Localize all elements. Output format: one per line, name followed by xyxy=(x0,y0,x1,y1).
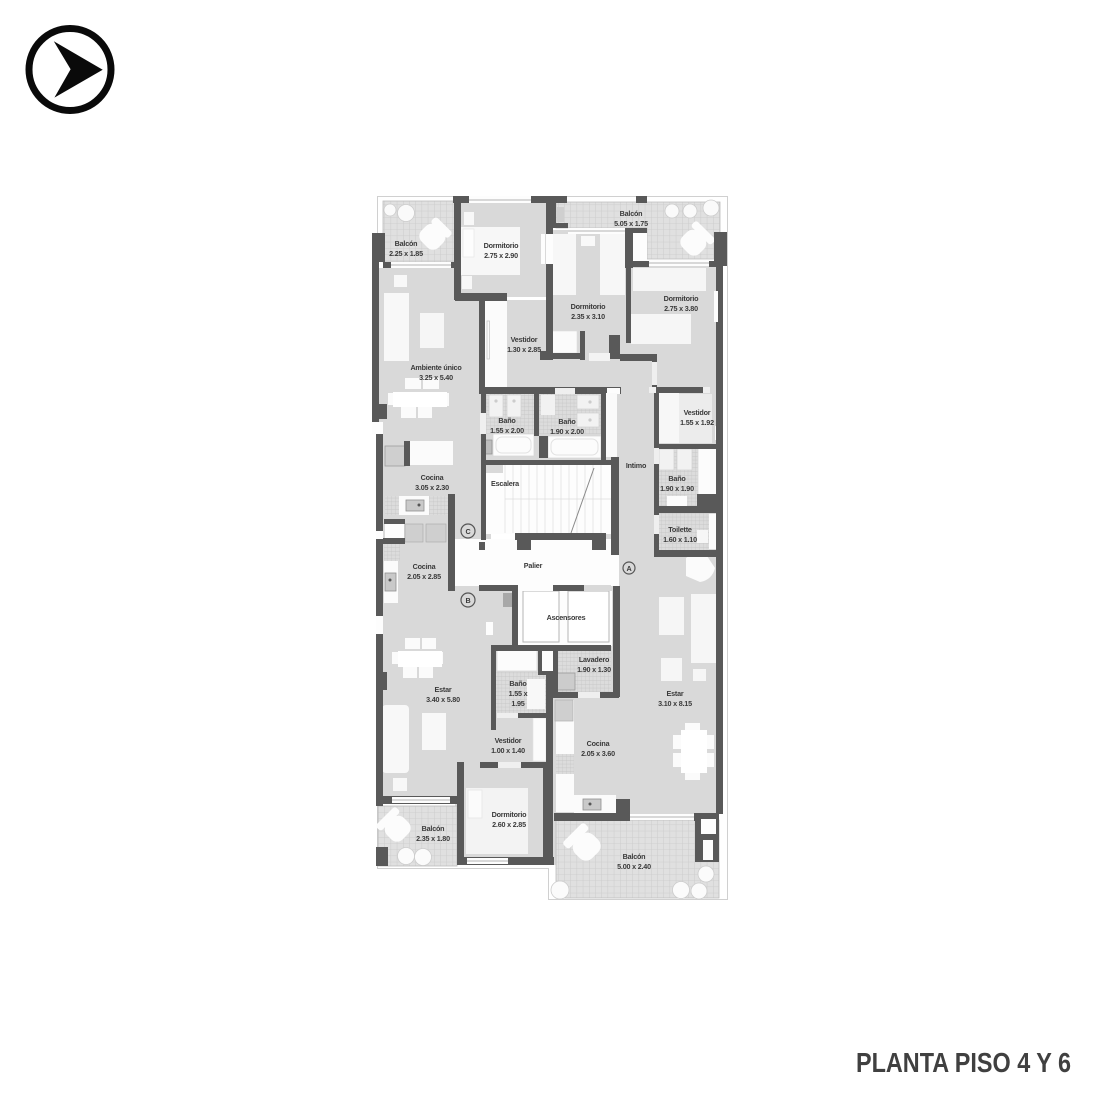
svg-text:Estar: Estar xyxy=(667,689,684,698)
svg-text:2.75 x 3.80: 2.75 x 3.80 xyxy=(664,304,698,313)
svg-text:Balcón: Balcón xyxy=(422,824,445,833)
svg-text:1.30 x 2.85: 1.30 x 2.85 xyxy=(507,345,541,354)
svg-text:Lavadero: Lavadero xyxy=(579,655,610,664)
svg-text:Dormitorio: Dormitorio xyxy=(571,302,607,311)
svg-text:Cocina: Cocina xyxy=(421,473,445,482)
svg-text:C: C xyxy=(466,527,471,536)
svg-text:2.60 x 2.85: 2.60 x 2.85 xyxy=(492,820,526,829)
svg-text:Balcón: Balcón xyxy=(395,239,418,248)
svg-text:1.90 x 1.30: 1.90 x 1.30 xyxy=(577,665,611,674)
svg-text:2.05 x 2.85: 2.05 x 2.85 xyxy=(407,572,441,581)
svg-text:Vestidor: Vestidor xyxy=(684,408,711,417)
svg-text:1.55 x: 1.55 x xyxy=(509,689,528,698)
svg-text:Dormitorio: Dormitorio xyxy=(664,294,700,303)
svg-text:Ambiente único: Ambiente único xyxy=(410,363,462,372)
svg-text:2.05 x 3.60: 2.05 x 3.60 xyxy=(581,749,615,758)
svg-text:1.95: 1.95 xyxy=(511,699,524,708)
svg-text:3.40 x 5.80: 3.40 x 5.80 xyxy=(426,695,460,704)
svg-text:5.05 x 1.75: 5.05 x 1.75 xyxy=(614,219,648,228)
svg-text:Dormitorio: Dormitorio xyxy=(492,810,528,819)
svg-text:1.00 x 1.40: 1.00 x 1.40 xyxy=(491,746,525,755)
svg-text:2.25 x 1.85: 2.25 x 1.85 xyxy=(389,249,423,258)
svg-text:Dormitorio: Dormitorio xyxy=(484,241,520,250)
svg-text:2.75 x 2.90: 2.75 x 2.90 xyxy=(484,251,518,260)
svg-text:3.25 x 5.40: 3.25 x 5.40 xyxy=(419,373,453,382)
svg-text:A: A xyxy=(627,564,632,573)
svg-text:Baño: Baño xyxy=(498,416,516,425)
svg-text:Intimo: Intimo xyxy=(626,461,647,470)
svg-text:Vestidor: Vestidor xyxy=(511,335,538,344)
svg-text:Vestidor: Vestidor xyxy=(495,736,522,745)
svg-text:1.90 x 2.00: 1.90 x 2.00 xyxy=(550,427,584,436)
svg-text:2.35 x 3.10: 2.35 x 3.10 xyxy=(571,312,605,321)
svg-text:Palier: Palier xyxy=(524,561,543,570)
svg-text:Escalera: Escalera xyxy=(491,479,520,488)
svg-text:PLANTA PISO 4 Y 6: PLANTA PISO 4 Y 6 xyxy=(856,1047,1071,1078)
svg-text:Balcón: Balcón xyxy=(623,852,646,861)
svg-text:Baño: Baño xyxy=(509,679,527,688)
svg-text:1.55 x 2.00: 1.55 x 2.00 xyxy=(490,426,524,435)
svg-text:5.00 x 2.40: 5.00 x 2.40 xyxy=(617,862,651,871)
svg-text:Cocina: Cocina xyxy=(413,562,437,571)
svg-text:B: B xyxy=(466,596,471,605)
svg-text:Balcón: Balcón xyxy=(620,209,643,218)
svg-text:Estar: Estar xyxy=(435,685,452,694)
svg-text:Baño: Baño xyxy=(558,417,576,426)
svg-text:1.55 x 1.92: 1.55 x 1.92 xyxy=(680,418,714,427)
svg-text:Baño: Baño xyxy=(668,474,686,483)
svg-text:2.35 x 1.80: 2.35 x 1.80 xyxy=(416,834,450,843)
svg-text:1.60 x 1.10: 1.60 x 1.10 xyxy=(663,535,697,544)
svg-text:3.05 x 2.30: 3.05 x 2.30 xyxy=(415,483,449,492)
svg-text:3.10 x 8.15: 3.10 x 8.15 xyxy=(658,699,692,708)
svg-text:Cocina: Cocina xyxy=(587,739,611,748)
svg-text:Toilette: Toilette xyxy=(668,525,692,534)
svg-text:Ascensores: Ascensores xyxy=(547,613,586,622)
svg-text:1.90 x 1.90: 1.90 x 1.90 xyxy=(660,484,694,493)
